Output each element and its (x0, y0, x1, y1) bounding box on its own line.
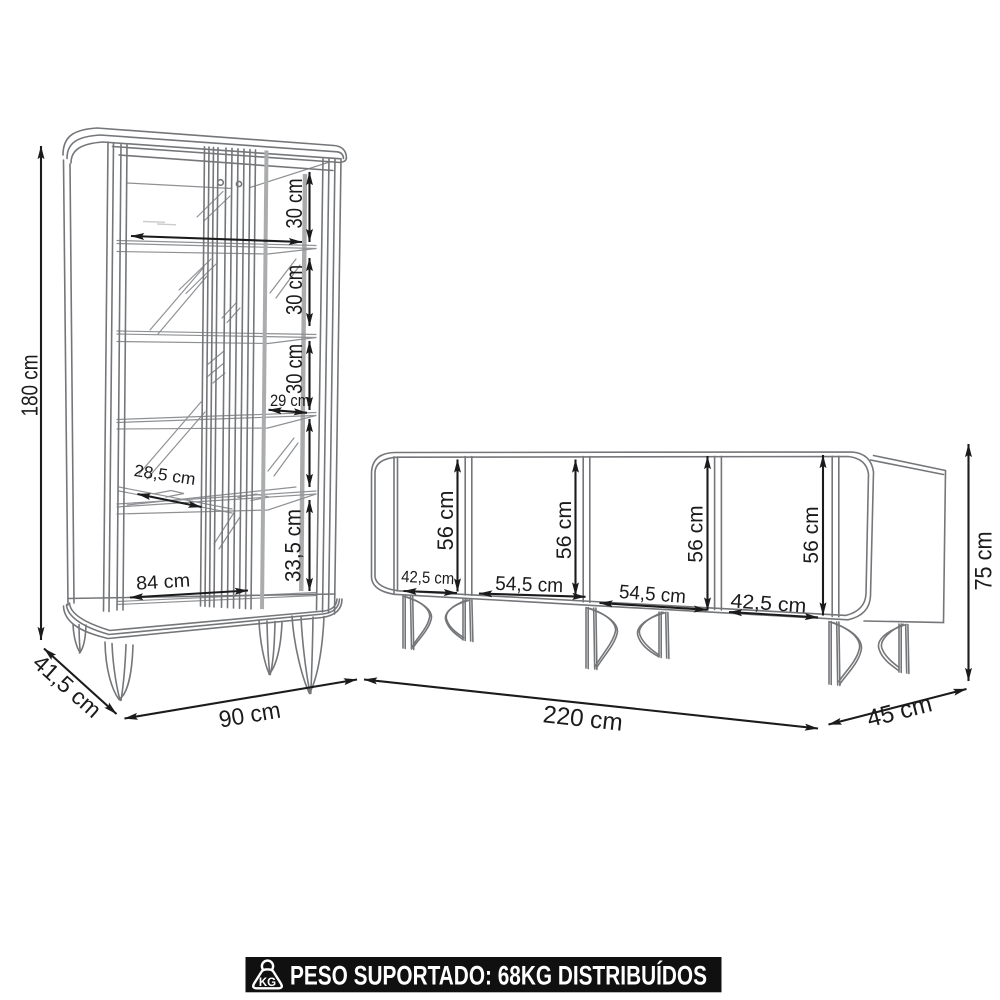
svg-text:56 cm: 56 cm (685, 505, 708, 562)
svg-text:84 cm: 84 cm (136, 570, 191, 594)
svg-text:42,5 cm: 42,5 cm (401, 568, 455, 588)
svg-text:56 cm: 56 cm (433, 491, 458, 551)
svg-text:30 cm: 30 cm (281, 265, 307, 315)
svg-text:33,5 cm: 33,5 cm (281, 509, 306, 582)
svg-text:41,5 cm: 41,5 cm (28, 649, 107, 723)
svg-text:30 cm: 30 cm (281, 179, 307, 229)
svg-text:30 cm: 30 cm (281, 344, 307, 394)
svg-text:KG: KG (259, 977, 276, 989)
svg-text:56 cm: 56 cm (552, 501, 576, 560)
svg-text:28,5 cm: 28,5 cm (133, 461, 197, 489)
svg-text:75 cm: 75 cm (971, 532, 998, 591)
svg-text:PESO SUPORTADO: 68KG DISTRIBUÍ: PESO SUPORTADO: 68KG DISTRIBUÍDOS (290, 960, 707, 991)
svg-text:45 cm: 45 cm (864, 690, 935, 733)
svg-text:29 cm: 29 cm (270, 391, 310, 410)
svg-text:180 cm: 180 cm (17, 355, 43, 417)
svg-text:56 cm: 56 cm (800, 506, 823, 563)
